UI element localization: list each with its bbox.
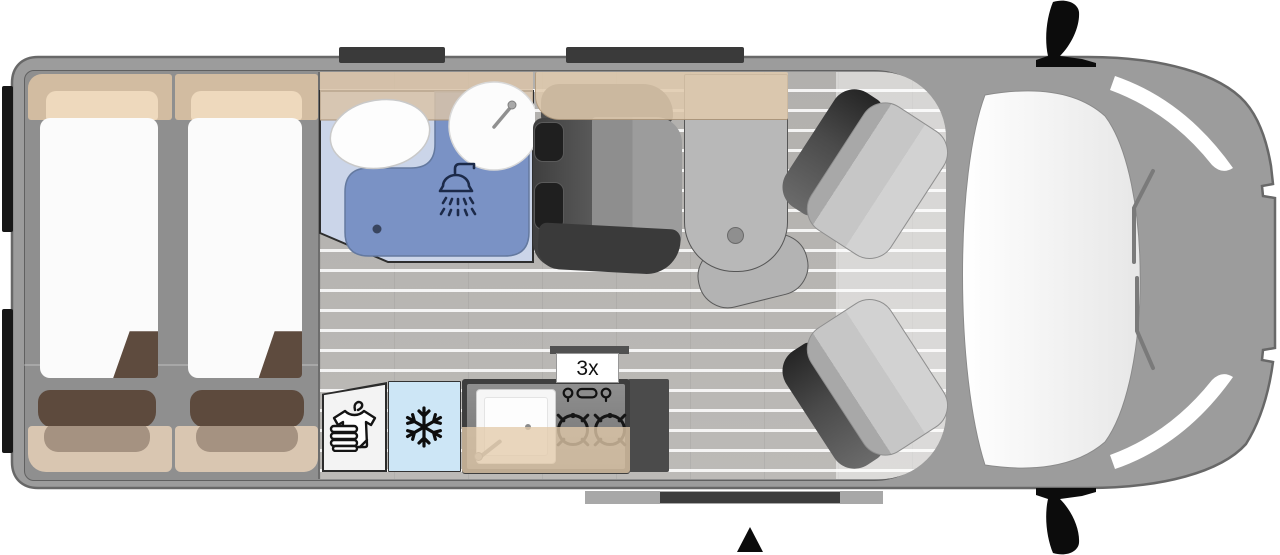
headrest	[534, 122, 564, 162]
pillow	[46, 91, 158, 120]
side-molding	[2, 309, 13, 453]
table-pedestal	[727, 227, 744, 244]
bench-bottom-armrest	[537, 222, 681, 275]
faucet-knob	[508, 101, 516, 109]
snowflake-icon	[401, 404, 447, 450]
blanket-overhang	[196, 422, 298, 452]
entry-arrow-icon	[737, 527, 763, 552]
roof-vent-bar	[566, 47, 744, 63]
shower-drain	[373, 225, 382, 234]
shirt-hanger-icon	[327, 398, 381, 452]
entry-door-sill	[660, 492, 840, 503]
washbasin	[449, 82, 535, 170]
windshield	[963, 91, 1141, 468]
control-knobs-icon	[560, 386, 614, 404]
pillow	[191, 91, 302, 120]
mirror-icon	[1036, 488, 1096, 554]
kitchen-side-cabinet	[628, 379, 669, 472]
worktop-flap	[462, 427, 630, 473]
burner-count-label: 3x	[556, 353, 619, 383]
blanket-overhang	[44, 422, 150, 452]
bathroom	[318, 70, 535, 267]
roof-vent-bar	[339, 47, 445, 63]
overhead-cabinet	[535, 72, 788, 120]
side-molding	[2, 86, 13, 232]
campervan-floorplan: 3x	[0, 0, 1280, 555]
